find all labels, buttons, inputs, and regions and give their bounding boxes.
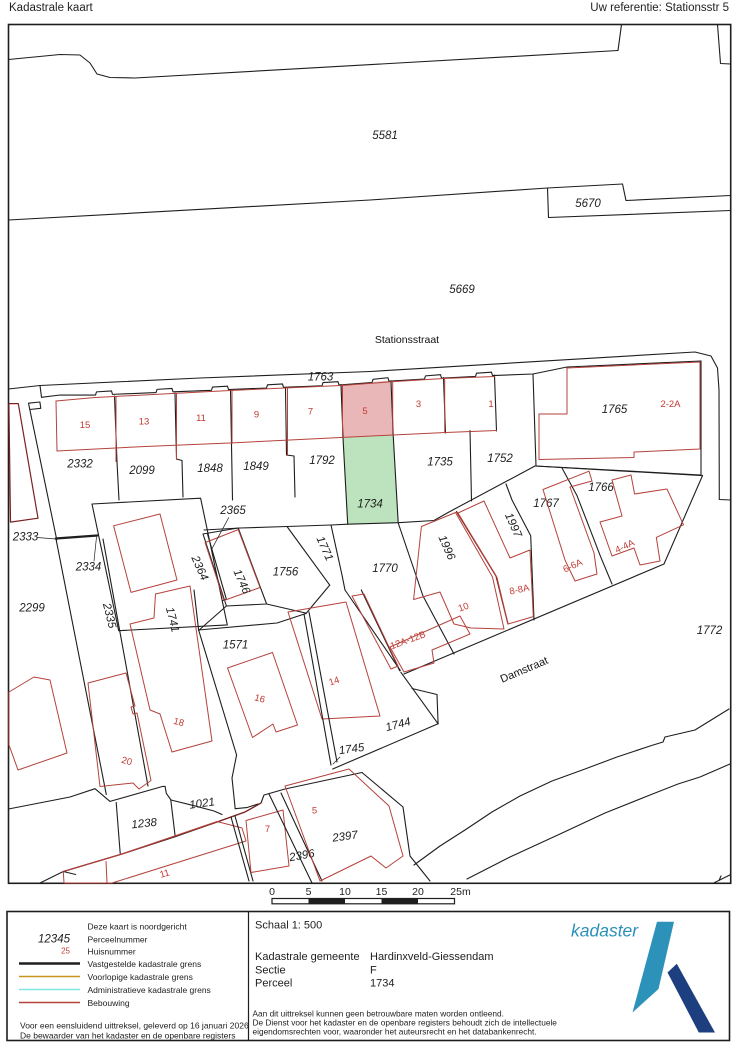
svg-text:5669: 5669: [449, 284, 475, 296]
svg-text:9: 9: [254, 410, 259, 421]
svg-text:25m: 25m: [450, 886, 471, 898]
svg-text:1792: 1792: [309, 455, 335, 467]
svg-text:5: 5: [362, 406, 367, 417]
svg-text:10: 10: [457, 601, 471, 615]
svg-text:1571: 1571: [223, 640, 249, 652]
svg-text:De bewaarder van het kadaster: De bewaarder van het kadaster en de open…: [20, 1031, 235, 1041]
svg-text:10: 10: [339, 886, 351, 898]
svg-text:20: 20: [412, 886, 424, 898]
svg-text:eigendomsrechten voor, waarond: eigendomsrechten voor, waaronder het aut…: [253, 1027, 537, 1037]
svg-text:Administratieve kadastrale gre: Administratieve kadastrale grens: [88, 985, 211, 995]
svg-text:14: 14: [327, 675, 340, 689]
svg-text:7: 7: [308, 407, 313, 418]
svg-text:1741: 1741: [163, 606, 181, 634]
svg-text:16: 16: [253, 692, 266, 705]
svg-text:Voorlopige kadastrale grens: Voorlopige kadastrale grens: [88, 972, 193, 982]
svg-text:8-8A: 8-8A: [509, 582, 532, 597]
svg-text:0: 0: [269, 886, 275, 898]
svg-text:1756: 1756: [273, 567, 299, 579]
svg-text:15: 15: [376, 886, 388, 898]
svg-text:2333: 2333: [12, 532, 39, 544]
svg-text:12A-12B: 12A-12B: [389, 629, 428, 652]
svg-text:1734: 1734: [370, 978, 394, 990]
svg-text:5670: 5670: [575, 198, 601, 210]
svg-text:2396: 2396: [287, 848, 316, 865]
svg-text:7: 7: [265, 824, 270, 835]
svg-text:Perceel: Perceel: [255, 978, 292, 990]
svg-text:2-2A: 2-2A: [660, 399, 681, 410]
svg-text:2299: 2299: [18, 603, 45, 615]
svg-text:5: 5: [312, 806, 317, 817]
svg-text:1: 1: [488, 399, 493, 410]
svg-text:1238: 1238: [131, 817, 158, 832]
svg-text:Sectie: Sectie: [255, 965, 286, 977]
svg-text:1996: 1996: [436, 534, 458, 563]
svg-text:1765: 1765: [602, 404, 628, 416]
svg-text:Huisnummer: Huisnummer: [88, 947, 136, 957]
svg-text:1766: 1766: [588, 482, 614, 494]
svg-text:2397: 2397: [331, 829, 360, 845]
svg-text:2364: 2364: [188, 553, 210, 582]
svg-text:Deze kaart is noordgericht: Deze kaart is noordgericht: [88, 922, 188, 932]
svg-text:2365: 2365: [219, 505, 246, 517]
svg-text:1746: 1746: [231, 568, 253, 597]
svg-text:25: 25: [61, 947, 70, 956]
svg-text:3: 3: [416, 399, 421, 410]
svg-text:13: 13: [139, 417, 150, 428]
svg-text:1848: 1848: [197, 463, 223, 475]
svg-text:12345: 12345: [38, 934, 71, 946]
svg-text:Damstraat: Damstraat: [499, 655, 550, 686]
svg-text:5581: 5581: [372, 130, 398, 142]
svg-text:1744: 1744: [384, 716, 412, 734]
svg-text:15: 15: [80, 420, 91, 431]
svg-text:1770: 1770: [372, 563, 398, 575]
svg-text:Hardinxveld-Giessendam: Hardinxveld-Giessendam: [370, 951, 494, 963]
svg-text:1752: 1752: [487, 453, 513, 465]
svg-text:2099: 2099: [128, 465, 155, 477]
svg-text:1771: 1771: [314, 535, 335, 563]
svg-text:1735: 1735: [427, 457, 453, 469]
svg-text:20: 20: [120, 755, 133, 768]
svg-text:4-4A: 4-4A: [614, 537, 637, 556]
svg-text:Perceelnummer: Perceelnummer: [88, 935, 148, 945]
svg-text:Bebouwing: Bebouwing: [88, 998, 130, 1008]
svg-text:11: 11: [159, 867, 172, 880]
svg-text:Kadastrale gemeente: Kadastrale gemeente: [255, 951, 360, 963]
svg-text:1745: 1745: [338, 742, 366, 758]
svg-text:Vastgestelde kadastrale grens: Vastgestelde kadastrale grens: [88, 959, 202, 969]
svg-text:1849: 1849: [243, 461, 269, 473]
svg-text:kadaster: kadaster: [571, 920, 639, 940]
svg-text:2334: 2334: [75, 562, 102, 574]
svg-text:1021: 1021: [189, 796, 216, 811]
svg-text:2332: 2332: [66, 459, 93, 471]
svg-text:1734: 1734: [357, 499, 383, 511]
svg-text:11: 11: [196, 413, 206, 424]
svg-text:18: 18: [172, 716, 185, 729]
svg-text:Stationsstraat: Stationsstraat: [375, 334, 439, 346]
svg-text:F: F: [370, 965, 377, 977]
svg-text:1772: 1772: [697, 625, 723, 637]
svg-text:5: 5: [306, 886, 312, 898]
svg-text:Voor een eensluidend uittrekse: Voor een eensluidend uittreksel, gelever…: [20, 1021, 249, 1031]
svg-text:Schaal 1: 500: Schaal 1: 500: [255, 920, 322, 932]
